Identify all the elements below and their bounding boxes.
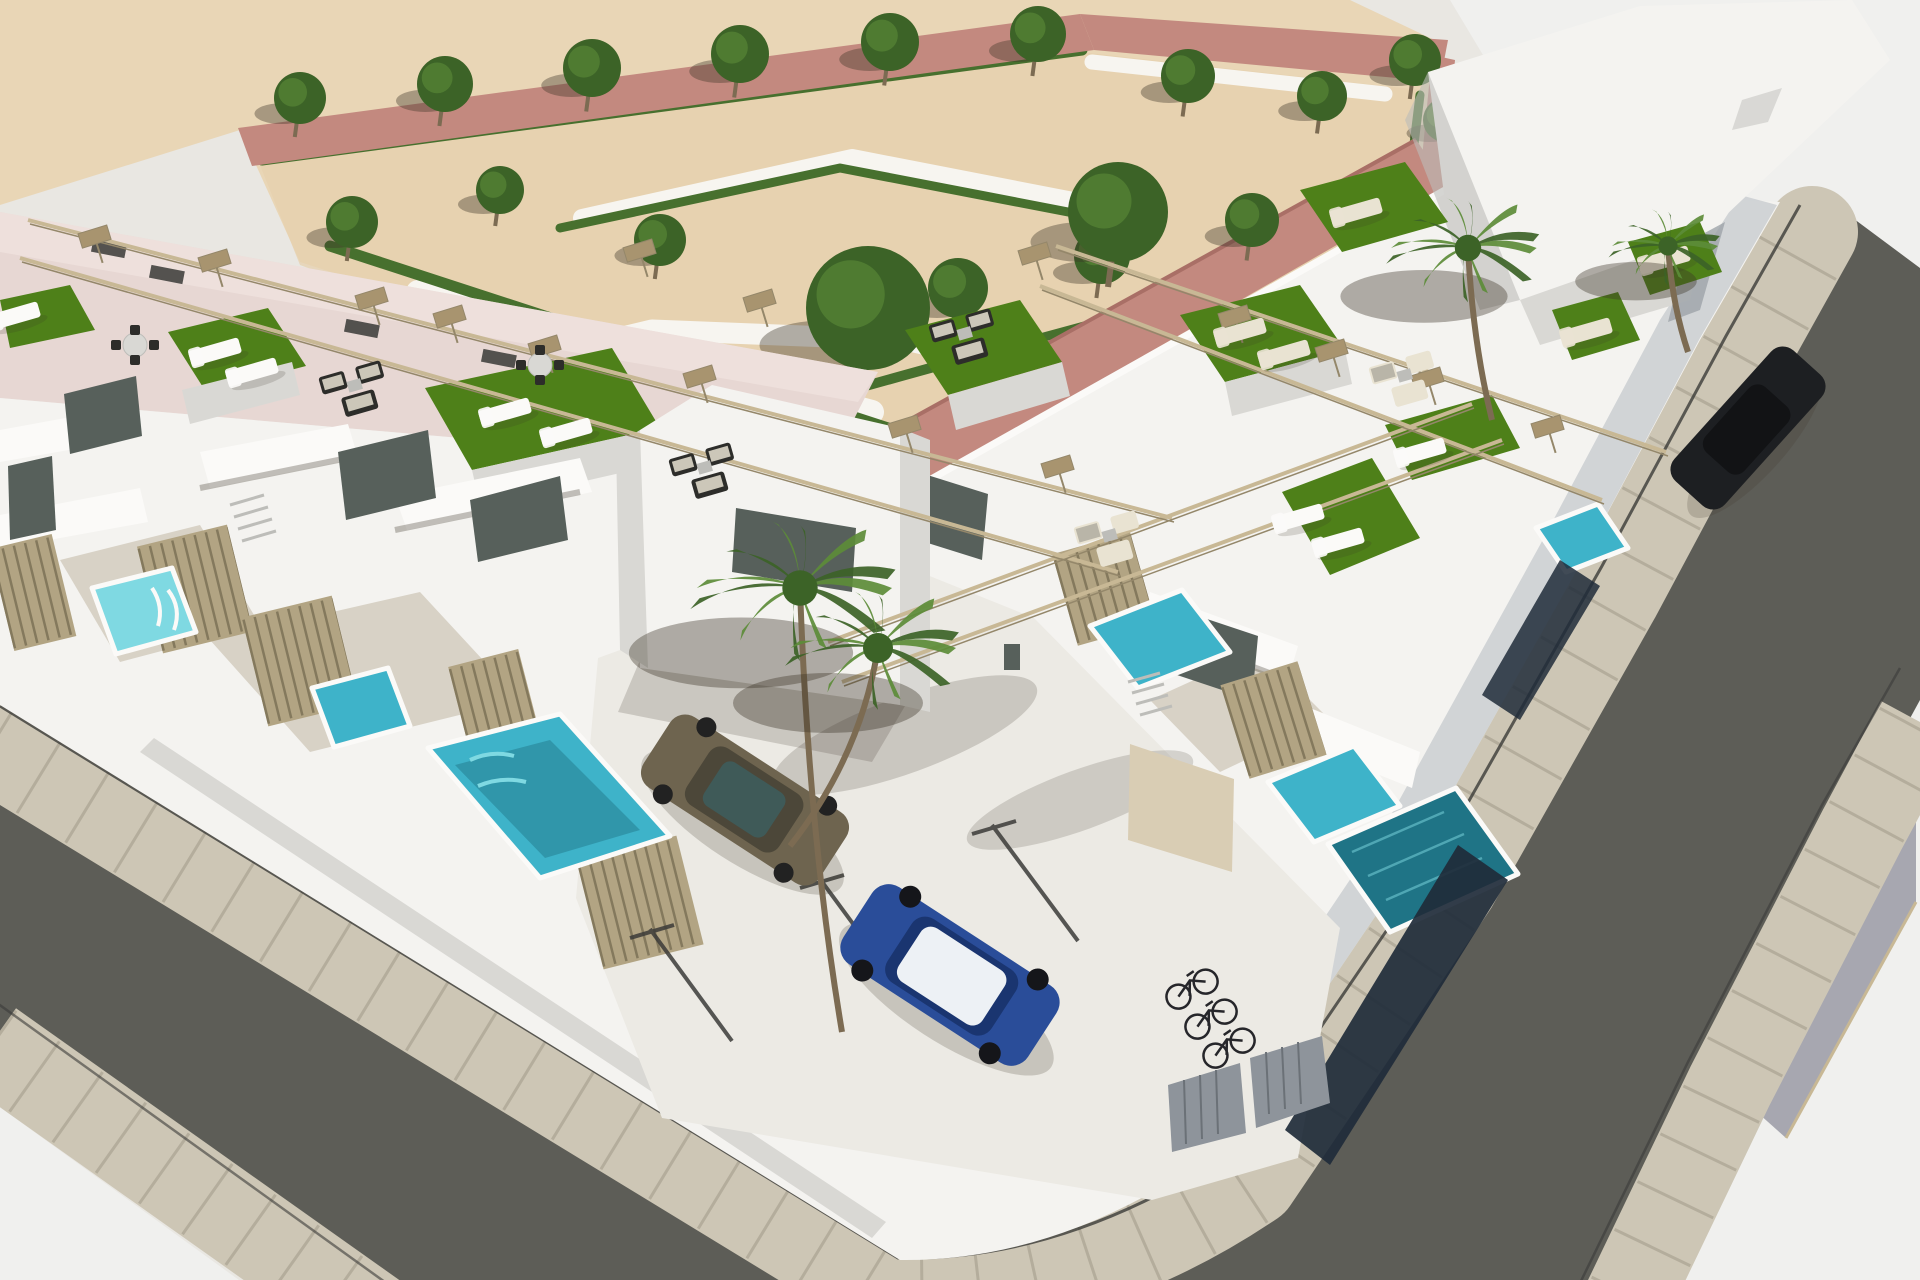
aerial-render: Aerial 3D architectural rendering of a m… [0, 0, 1920, 1280]
render-viewport: Aerial 3D architectural rendering of a m… [0, 0, 1920, 1280]
